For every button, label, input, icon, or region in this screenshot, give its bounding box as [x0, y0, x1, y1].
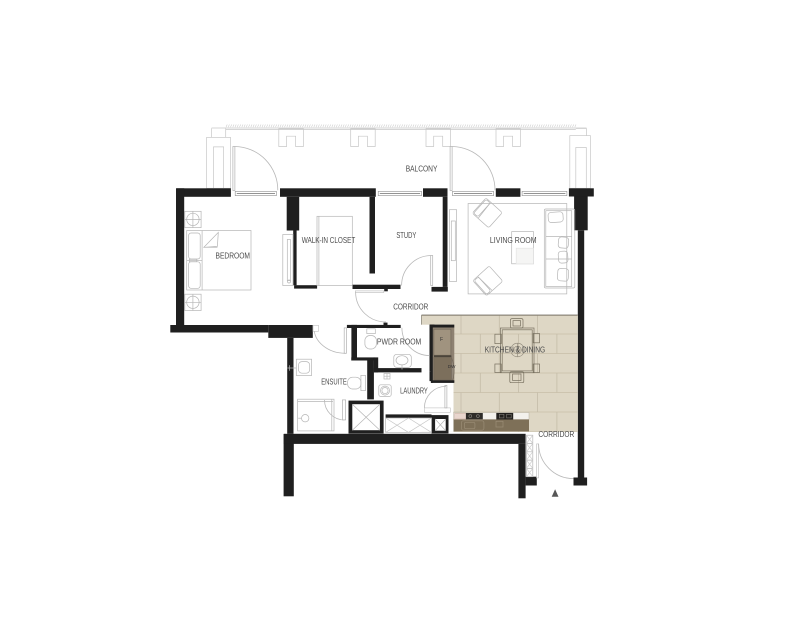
svg-text:STUDY: STUDY [396, 230, 416, 240]
svg-text:F: F [440, 337, 443, 343]
svg-text:LAUNDRY: LAUNDRY [400, 385, 428, 395]
svg-text:CORRIDOR: CORRIDOR [538, 429, 574, 439]
svg-text:PWDR ROOM: PWDR ROOM [377, 336, 421, 346]
svg-text:KITCHEN & DINING: KITCHEN & DINING [485, 344, 546, 354]
svg-text:CORRIDOR: CORRIDOR [393, 302, 428, 312]
svg-text:ENSUITE: ENSUITE [321, 377, 347, 387]
svg-text:BEDROOM: BEDROOM [216, 250, 251, 260]
svg-text:BALCONY: BALCONY [406, 163, 438, 173]
svg-text:WALK-IN CLOSET: WALK-IN CLOSET [302, 235, 356, 245]
svg-text:LIVING ROOM: LIVING ROOM [490, 235, 537, 245]
svg-text:DW: DW [448, 364, 456, 369]
